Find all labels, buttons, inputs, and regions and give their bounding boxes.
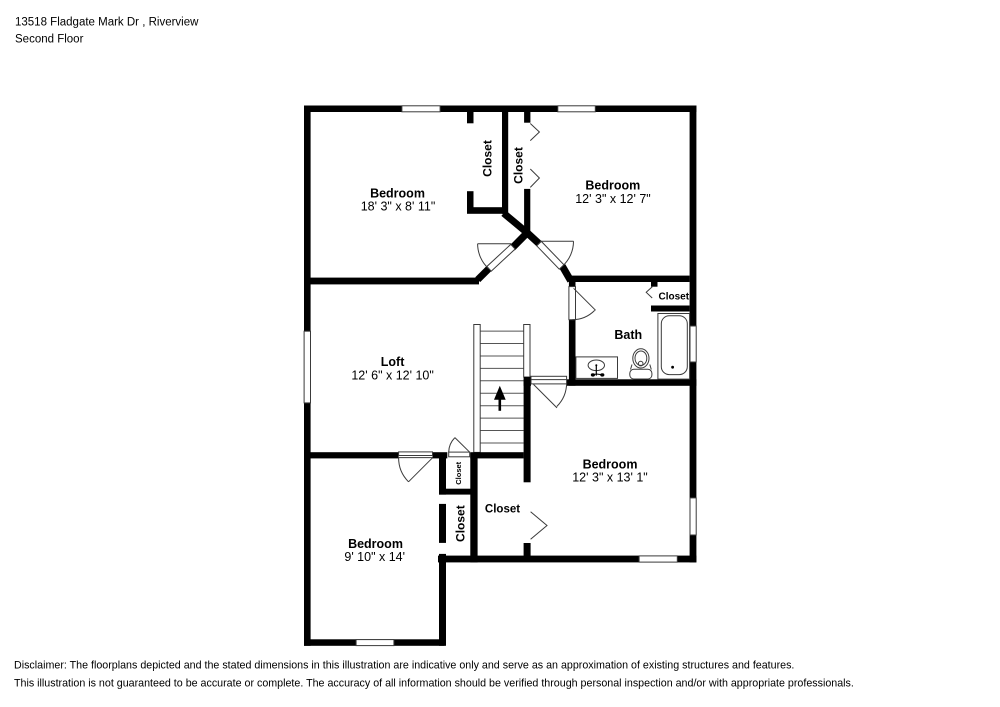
svg-text:Closet: Closet	[454, 461, 463, 484]
svg-text:Bedroom: Bedroom	[348, 537, 403, 551]
svg-text:Bedroom: Bedroom	[585, 179, 640, 193]
svg-text:Bedroom: Bedroom	[583, 457, 638, 471]
svg-text:Bath: Bath	[614, 328, 642, 342]
svg-text:Closet: Closet	[511, 147, 525, 184]
svg-text:12' 6" x 12' 10": 12' 6" x 12' 10"	[351, 369, 433, 383]
svg-text:Closet: Closet	[481, 140, 495, 177]
svg-text:Closet: Closet	[485, 504, 520, 516]
svg-text:Bedroom: Bedroom	[370, 187, 425, 201]
svg-text:This illustration is not guara: This illustration is not guaranteed to b…	[14, 678, 854, 690]
svg-text:Disclaimer: The floorplans dep: Disclaimer: The floorplans depicted and …	[14, 660, 794, 672]
svg-text:12' 3" x 12' 7": 12' 3" x 12' 7"	[575, 192, 651, 206]
svg-text:Second Floor: Second Floor	[15, 34, 84, 46]
svg-text:9' 10" x 14': 9' 10" x 14'	[344, 550, 405, 564]
svg-text:13518 Fladgate Mark Dr , River: 13518 Fladgate Mark Dr , Riverview	[15, 17, 199, 29]
svg-text:18' 3" x 8' 11": 18' 3" x 8' 11"	[361, 200, 436, 214]
svg-text:Closet: Closet	[659, 291, 690, 302]
svg-text:12' 3" x 13' 1": 12' 3" x 13' 1"	[572, 471, 648, 485]
svg-text:Closet: Closet	[453, 505, 467, 542]
svg-text:Loft: Loft	[381, 355, 405, 369]
